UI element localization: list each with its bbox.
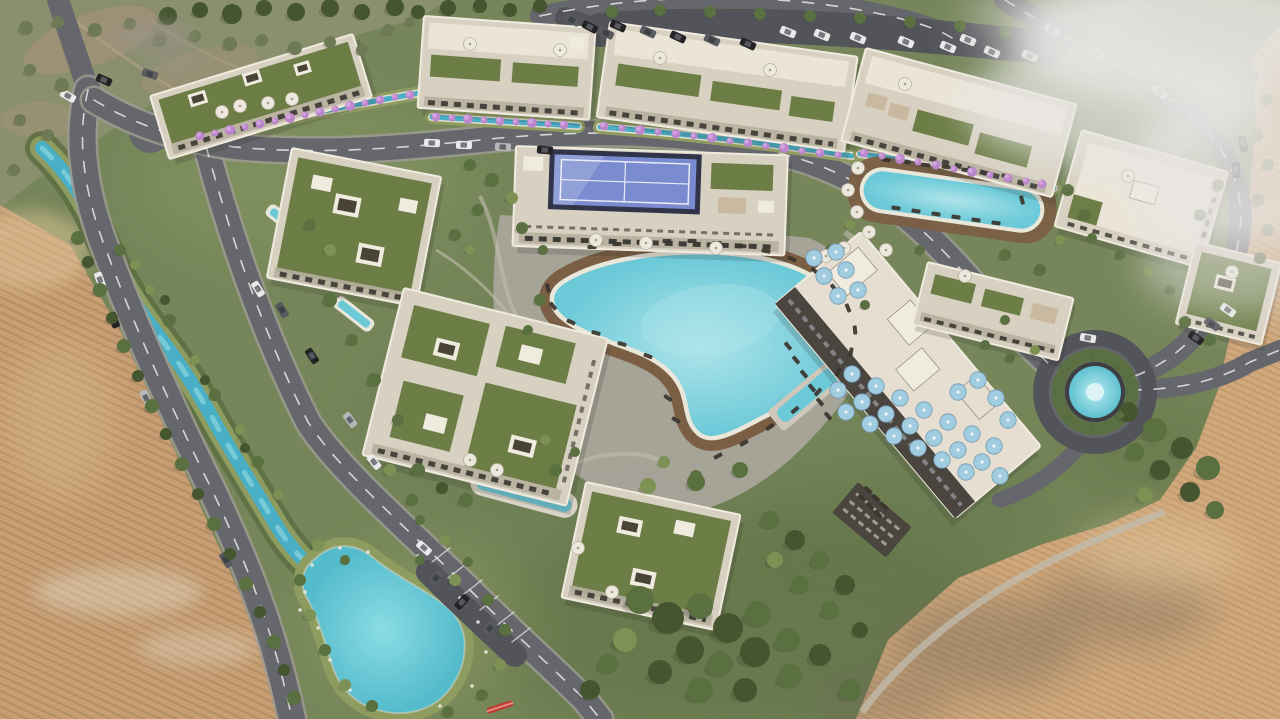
tree (415, 515, 425, 525)
tree (267, 635, 281, 649)
tree (754, 8, 766, 20)
tree (145, 285, 155, 295)
car-windshield (499, 144, 506, 150)
bougainvillea-highlight (256, 120, 261, 125)
lounger (853, 325, 858, 334)
building-b (417, 16, 600, 127)
tree (106, 312, 118, 324)
tree (540, 435, 550, 445)
umbrella-tip (496, 469, 499, 472)
sun-lounger (853, 325, 858, 334)
tree (640, 478, 656, 494)
tree (354, 4, 370, 20)
tree (294, 574, 306, 586)
bougainvillea-highlight (951, 166, 955, 170)
bougainvillea-highlight (987, 172, 991, 176)
tree (114, 244, 126, 256)
tree (384, 464, 396, 476)
tree (791, 576, 809, 594)
tree (71, 231, 85, 245)
tree (687, 593, 713, 619)
umbrella-tip (956, 390, 959, 393)
resort-aerial-render (0, 0, 1280, 719)
lounger (737, 244, 746, 249)
bougainvillea-highlight (915, 159, 919, 163)
tree (915, 245, 925, 255)
tree (740, 637, 770, 667)
tree (200, 375, 210, 385)
bougainvillea-highlight (346, 102, 351, 107)
tree (1062, 184, 1074, 196)
bougainvillea-highlight (816, 149, 821, 154)
tree (1171, 437, 1193, 459)
tree (449, 574, 461, 586)
tree (459, 493, 473, 507)
roof-bulkhead (523, 156, 543, 171)
tree (132, 370, 144, 382)
tree (1116, 361, 1124, 369)
bougainvillea-highlight (481, 117, 485, 121)
wildflower (328, 658, 332, 662)
tree (1137, 487, 1153, 503)
tree (1079, 209, 1091, 221)
tree (411, 463, 425, 477)
wildflower (438, 704, 442, 708)
tree (1196, 456, 1220, 480)
bougainvillea-highlight (362, 100, 366, 104)
tree (648, 660, 672, 684)
tree (323, 293, 337, 307)
tree (1091, 422, 1099, 430)
lounger (663, 239, 672, 243)
tree (713, 613, 743, 643)
tree (440, 535, 450, 545)
umbrella-tip (469, 43, 472, 46)
sun-lounger (613, 242, 622, 246)
tree (538, 245, 548, 255)
wildflower (298, 608, 302, 612)
umbrella-tip (715, 247, 718, 250)
tree (93, 283, 107, 297)
tree (745, 601, 771, 627)
sand-highlight (1080, 520, 1240, 590)
tree (14, 114, 26, 126)
tree (24, 64, 36, 76)
tree (1030, 345, 1040, 355)
umbrella-tip (291, 98, 294, 101)
rooftop-padel-court (548, 149, 702, 214)
bougainvillea-highlight (835, 152, 839, 156)
tree (626, 586, 654, 614)
tree (1126, 443, 1144, 461)
tree (130, 260, 140, 270)
umbrella-tip (964, 275, 967, 278)
sun-lounger (688, 239, 697, 243)
bougainvillea-highlight (672, 130, 677, 135)
umbrella-tip (860, 400, 863, 403)
tree (598, 654, 618, 674)
tree (534, 294, 546, 306)
umbrella-tip (932, 436, 935, 439)
tree (472, 204, 484, 216)
tree (415, 555, 425, 565)
rooftop-pergola (718, 197, 747, 214)
wildflower (476, 620, 480, 624)
tree (732, 462, 748, 478)
tree (1204, 334, 1216, 346)
bougainvillea-highlight (302, 112, 306, 116)
umbrella-tip (611, 591, 614, 594)
tree (324, 244, 336, 256)
tree (1143, 418, 1167, 442)
umbrella-tip (645, 242, 648, 245)
tree (809, 644, 831, 666)
tree (852, 622, 868, 638)
tree (1206, 501, 1224, 519)
tree (405, 17, 415, 27)
tree (523, 325, 533, 335)
umbrella-tip (836, 294, 839, 297)
tree (436, 482, 448, 494)
tree (442, 706, 454, 718)
tree (1150, 460, 1170, 480)
tree (506, 192, 518, 204)
sun-lounger (663, 239, 672, 243)
tree (839, 679, 861, 701)
umbrella-tip (922, 408, 925, 411)
roof-garden (711, 163, 774, 191)
tree (1000, 315, 1010, 325)
car (456, 141, 472, 150)
tree (288, 41, 302, 55)
umbrella-tip (898, 396, 901, 399)
tree (117, 339, 131, 353)
bougainvillea-highlight (406, 91, 411, 96)
umbrella-tip (980, 460, 983, 463)
umbrella-tip (885, 249, 888, 252)
tree (287, 691, 301, 705)
umbrella-tip (992, 444, 995, 447)
bougainvillea-highlight (708, 134, 713, 139)
tree (82, 256, 94, 268)
tree (192, 2, 208, 18)
umbrella-tip (1006, 418, 1009, 421)
tree (190, 355, 200, 365)
tree (980, 340, 990, 350)
tree (19, 21, 33, 35)
tree (367, 373, 381, 387)
bougainvillea-highlight (1038, 180, 1043, 185)
smoke (146, 52, 206, 72)
bougainvillea-highlight (896, 155, 901, 160)
bougainvillea-highlight (392, 94, 396, 98)
tree (240, 443, 250, 453)
car (495, 142, 512, 151)
bougainvillea-highlight (619, 125, 623, 129)
umbrella-tip (976, 378, 979, 381)
umbrella-tip (964, 470, 967, 473)
tree (160, 295, 170, 305)
tree (340, 555, 350, 565)
umbrella-tip (812, 256, 815, 259)
bougainvillea-highlight (286, 114, 291, 119)
tree (1179, 316, 1191, 328)
tree (904, 16, 916, 28)
bougainvillea-highlight (226, 126, 231, 131)
umbrella-tip (844, 410, 847, 413)
tree (503, 3, 517, 17)
tree (235, 425, 245, 435)
tree (1180, 482, 1200, 502)
tree (304, 609, 316, 621)
umbrella-tip (847, 189, 850, 192)
bougainvillea-highlight (212, 130, 216, 134)
tree (1055, 235, 1065, 245)
umbrella-tip (946, 420, 949, 423)
tree (1066, 411, 1074, 419)
tree (192, 488, 204, 500)
bougainvillea-highlight (316, 108, 321, 113)
tree (224, 548, 236, 560)
tree (580, 680, 600, 700)
tree (382, 24, 394, 36)
tree (516, 222, 528, 234)
bougainvillea-highlight (860, 149, 865, 154)
sun-lounger (737, 244, 746, 249)
tree (464, 159, 476, 171)
tree (499, 624, 511, 636)
umbrella-tip (239, 105, 242, 108)
tree (835, 575, 855, 595)
bougainvillea-highlight (376, 96, 381, 101)
sand-highlight (5, 340, 115, 500)
umbrella-tip (904, 83, 907, 86)
car (424, 139, 440, 148)
roof-bulkhead (758, 200, 774, 213)
bougainvillea-highlight (528, 119, 533, 124)
tree (346, 334, 358, 346)
umbrella-tip (856, 211, 859, 214)
smoke (108, 22, 196, 50)
umbrella-tip (267, 102, 270, 105)
tree (449, 229, 461, 241)
dust-haze (33, 568, 203, 616)
umbrella-tip (836, 388, 839, 391)
tree (999, 249, 1011, 261)
bougainvillea-highlight (932, 161, 937, 166)
bougainvillea-highlight (496, 117, 501, 122)
tree (159, 7, 177, 25)
tree (463, 557, 473, 567)
tree (704, 6, 716, 18)
lounger (613, 242, 622, 246)
tree (312, 539, 324, 551)
umbrella-tip (834, 250, 837, 253)
umbrella-tip (856, 288, 859, 291)
car-windshield (541, 147, 548, 153)
wildflower (366, 550, 370, 554)
bougainvillea-highlight (799, 148, 803, 152)
tree (761, 511, 779, 529)
tree (1091, 350, 1099, 358)
umbrella-tip (659, 57, 662, 60)
bougainvillea-highlight (600, 122, 605, 127)
tree (304, 219, 316, 231)
tree (570, 447, 580, 457)
tree (854, 12, 866, 24)
tree (254, 606, 266, 618)
tree (1115, 250, 1125, 260)
car-windshield (428, 140, 435, 145)
tree (687, 677, 713, 703)
umbrella-tip (559, 49, 562, 52)
dust-haze (138, 630, 258, 666)
bougainvillea-highlight (272, 118, 276, 122)
tree (1087, 233, 1097, 243)
tree (145, 399, 159, 413)
tree (252, 456, 264, 468)
bougainvillea-highlight (242, 124, 246, 128)
tree (1005, 353, 1015, 363)
tree (658, 456, 670, 468)
umbrella-tip (822, 274, 825, 277)
tree (785, 530, 805, 550)
bougainvillea-highlight (449, 115, 453, 119)
bougainvillea-highlight (464, 115, 469, 120)
tree (482, 594, 494, 606)
umbrella-tip (998, 474, 1001, 477)
bougainvillea-highlight (196, 132, 201, 137)
tree (676, 636, 704, 664)
umbrella-tip (868, 422, 871, 425)
tree (52, 16, 64, 28)
tree (652, 602, 684, 634)
tree (485, 173, 499, 187)
tree (550, 464, 562, 476)
building-f (265, 148, 446, 314)
tree (339, 679, 351, 691)
tree (733, 678, 757, 702)
bougainvillea-highlight (432, 113, 437, 118)
tree (42, 129, 54, 141)
umbrella-tip (825, 255, 828, 258)
tree (613, 628, 637, 652)
umbrella-tip (940, 458, 943, 461)
tree (406, 494, 418, 506)
car-windshield (1084, 335, 1091, 341)
bougainvillea-highlight (780, 144, 785, 149)
tree (207, 517, 221, 531)
umbrella-tip (221, 111, 224, 114)
bougainvillea-highlight (744, 139, 749, 144)
tree (687, 473, 705, 491)
tree (278, 664, 290, 676)
bougainvillea-highlight (636, 126, 641, 131)
tree (8, 164, 20, 176)
tree (223, 37, 237, 51)
umbrella-tip (844, 268, 847, 271)
tree (222, 4, 242, 24)
tree (55, 78, 69, 92)
tree (287, 3, 305, 21)
tree (411, 5, 425, 19)
tree (1034, 264, 1046, 276)
bougainvillea-highlight (513, 119, 517, 123)
tree (366, 700, 378, 712)
tree (767, 552, 783, 568)
umbrella-tip (956, 448, 959, 451)
bougainvillea-highlight (560, 121, 565, 126)
umbrella-tip (595, 239, 598, 242)
wildflower (470, 684, 474, 688)
tree (606, 6, 618, 18)
tree (175, 457, 189, 471)
bougainvillea-highlight (763, 143, 767, 147)
tree (776, 628, 800, 652)
bougainvillea-highlight (655, 129, 659, 133)
aerial-render-stage (0, 0, 1280, 719)
wildflower (310, 563, 314, 567)
umbrella-tip (970, 432, 973, 435)
fountain-jet (1086, 383, 1104, 401)
wildflower (338, 546, 342, 550)
tree (164, 314, 176, 326)
tree (256, 0, 272, 16)
wildflower (484, 650, 488, 654)
lounger (688, 239, 697, 243)
tree (804, 10, 816, 22)
tree (239, 577, 253, 591)
umbrella-tip (884, 412, 887, 415)
tree (1127, 386, 1135, 394)
tree (860, 300, 870, 310)
tree (1116, 411, 1124, 419)
tree (811, 551, 829, 569)
tree (160, 428, 172, 440)
tree (256, 34, 268, 46)
bougainvillea-highlight (727, 138, 731, 142)
tree (392, 414, 404, 426)
tree (319, 644, 331, 656)
wildflower (316, 626, 320, 630)
umbrella-tip (850, 372, 853, 375)
umbrella-tip (469, 459, 472, 462)
tree (821, 601, 839, 619)
tree (209, 389, 221, 401)
tree (465, 245, 475, 255)
umbrella-tip (857, 167, 860, 170)
tree (778, 664, 802, 688)
bougainvillea-highlight (332, 106, 336, 110)
bougainvillea-highlight (879, 153, 883, 157)
bougainvillea-highlight (968, 168, 973, 173)
tree (273, 490, 283, 500)
tree (440, 0, 456, 16)
tree (324, 36, 336, 48)
umbrella-tip (892, 434, 895, 437)
roof-bulkhead (570, 36, 585, 49)
tree (88, 23, 102, 37)
tree (494, 659, 506, 671)
tree (356, 44, 368, 56)
bougainvillea-highlight (1004, 174, 1009, 179)
car (537, 145, 554, 154)
car-windshield (460, 142, 467, 147)
umbrella-tip (994, 396, 997, 399)
tree (476, 689, 488, 701)
tree (707, 651, 733, 677)
umbrella-tip (769, 69, 772, 72)
